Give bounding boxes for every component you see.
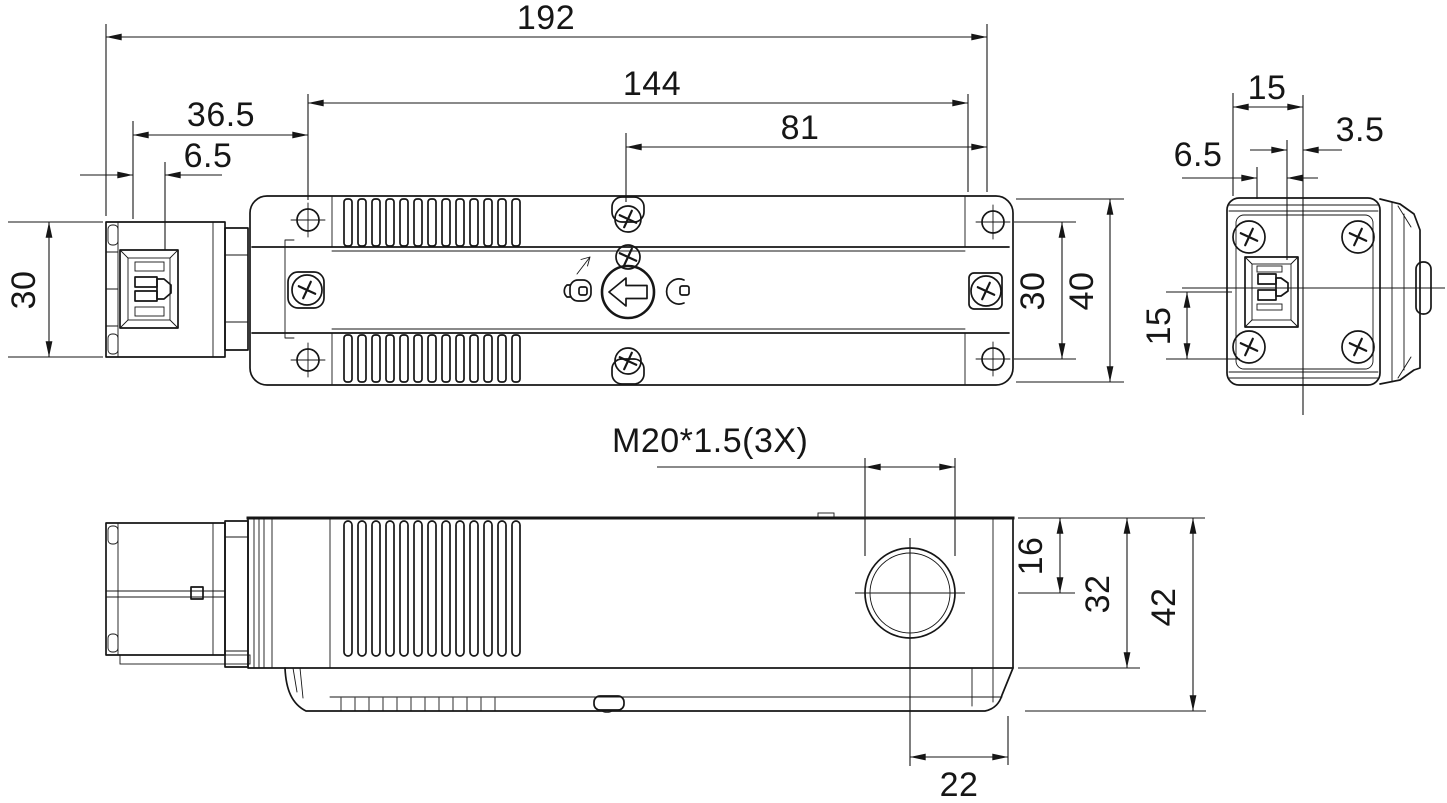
fins-top-band (344, 199, 520, 246)
hook-icon (667, 279, 689, 304)
center-screws-and-dial (602, 197, 654, 384)
mounting-hole (976, 205, 1010, 239)
dim-label-36-5: 36.5 (187, 96, 255, 134)
dim-label-42: 42 (1145, 588, 1183, 627)
dim-gland-center-from-edge: 22 (910, 716, 1008, 803)
dim-label-32: 32 (1079, 575, 1117, 614)
mounting-hole (976, 342, 1010, 376)
cable-gland (855, 538, 965, 766)
dim-mount-length: 144 (308, 65, 968, 200)
dim-label-6-5: 6.5 (184, 137, 233, 175)
left-mount-flange (285, 203, 325, 377)
dim-label-30-left: 30 (5, 271, 43, 310)
dim-span-right: 81 (626, 109, 987, 202)
mounting-hole (291, 343, 325, 377)
dim-end-width: 15 (1233, 69, 1303, 196)
dim-label-40: 40 (1063, 272, 1101, 311)
flange-tab (594, 696, 624, 710)
padlock-icon (564, 280, 591, 301)
three-view-dimension-drawing: 192 144 81 36.5 6.5 30 (0, 0, 1447, 803)
dim-label-3-5: 3.5 (1336, 111, 1385, 149)
small-arrow-icon (577, 257, 590, 274)
dim-end-offset-left: 6.5 (1174, 136, 1318, 199)
bottom-flange (285, 668, 1013, 712)
side-view: M20*1.5(3X) 16 32 42 22 (106, 422, 1206, 803)
dim-label-15-left: 15 (1140, 307, 1178, 346)
dim-label-192: 192 (517, 0, 575, 37)
fins-bottom-band (344, 335, 520, 382)
flange-ribs (341, 698, 495, 711)
dim-label-m20: M20*1.5(3X) (612, 422, 808, 460)
side-view-head (106, 521, 250, 667)
dim-label-81: 81 (781, 109, 820, 147)
dim-label-15-top: 15 (1248, 69, 1287, 107)
dial-left-arrow-icon (609, 278, 647, 306)
dim-side-total-height: 42 (1025, 518, 1206, 711)
dim-head-height: 30 (5, 222, 103, 357)
end-view: 15 3.5 6.5 15 (1140, 69, 1445, 415)
dim-head-slot-offset: 6.5 (80, 137, 232, 250)
end-view-socket (1245, 257, 1298, 327)
actuator-socket (120, 250, 178, 328)
top-view-body-outline (250, 196, 1013, 385)
dim-label-16: 16 (1012, 537, 1050, 576)
technical-drawing-canvas: 192 144 81 36.5 6.5 30 (0, 0, 1447, 803)
dim-label-22: 22 (940, 766, 979, 803)
dim-end-half-height: 15 (1140, 292, 1240, 359)
end-view-side-profile (1380, 199, 1431, 384)
dim-label-6-5-end: 6.5 (1174, 136, 1223, 174)
dim-end-offset-right: 3.5 (1250, 111, 1384, 260)
fins-side (344, 521, 520, 656)
top-view: 192 144 81 36.5 6.5 30 (5, 0, 1124, 385)
dim-gland-thread: M20*1.5(3X) (612, 422, 955, 556)
mounting-hole (291, 203, 325, 237)
channel-edges (252, 247, 1009, 333)
top-view-head (106, 222, 248, 357)
right-mount-flange (969, 205, 1010, 376)
dim-label-30-right: 30 (1014, 272, 1052, 311)
dim-label-144: 144 (623, 65, 681, 103)
